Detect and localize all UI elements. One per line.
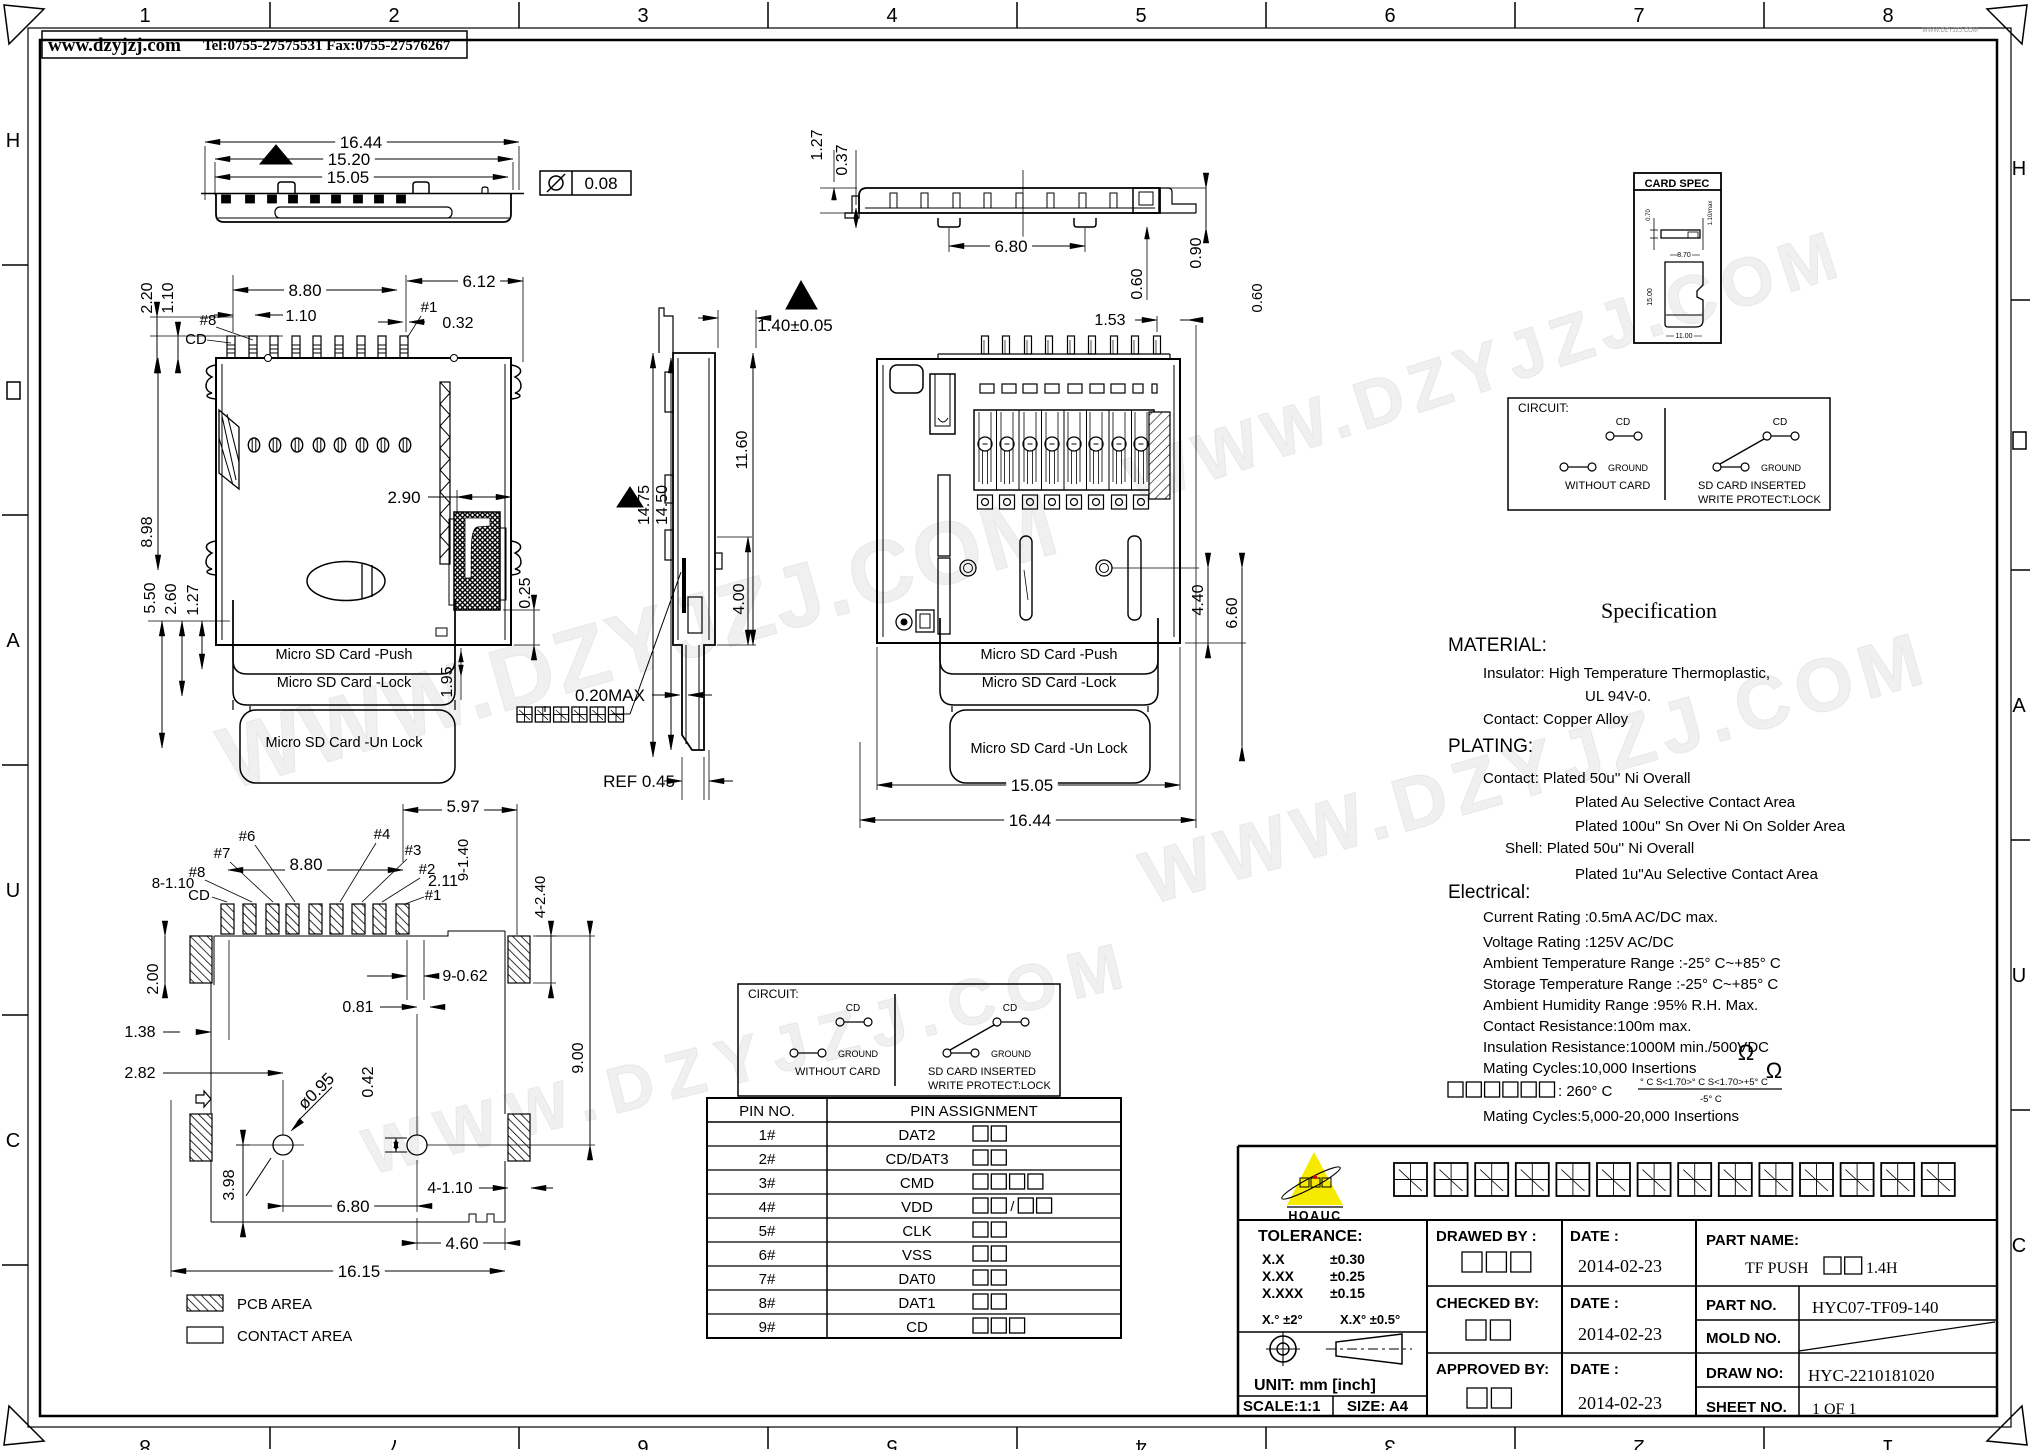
- svg-text:X.XXX: X.XXX: [1262, 1285, 1304, 1301]
- svg-text:3: 3: [1384, 1435, 1395, 1450]
- svg-text:U: U: [6, 880, 20, 902]
- svg-text:Plated 100u'' Sn Over Ni On So: Plated 100u'' Sn Over Ni On Solder Area: [1575, 818, 1846, 835]
- svg-text:PIN NO.: PIN NO.: [739, 1103, 795, 1120]
- svg-text:CMD: CMD: [900, 1175, 934, 1192]
- svg-text:Micro SD Card -Lock: Micro SD Card -Lock: [982, 675, 1117, 691]
- svg-text:Plated 1u"Au Selective Contact: Plated 1u"Au Selective Contact Area: [1575, 866, 1819, 883]
- svg-text:3#: 3#: [759, 1175, 776, 1192]
- svg-text:0.37: 0.37: [834, 144, 851, 175]
- svg-text:APPROVED BY:: APPROVED BY:: [1436, 1361, 1549, 1378]
- svg-text:CIRCUIT:: CIRCUIT:: [1518, 401, 1569, 415]
- svg-text:14.50: 14.50: [654, 485, 671, 525]
- svg-text:4: 4: [886, 5, 897, 27]
- svg-text:DAT1: DAT1: [898, 1295, 935, 1312]
- svg-text:15.00: 15.00: [1647, 288, 1654, 306]
- svg-text:0.42: 0.42: [360, 1066, 377, 1097]
- svg-text:1.27: 1.27: [185, 584, 202, 615]
- svg-text:A: A: [6, 630, 20, 652]
- svg-text:#3: #3: [405, 842, 422, 859]
- svg-text:DRAWED BY :: DRAWED BY :: [1436, 1228, 1537, 1245]
- svg-text:WRITE PROTECT:LOCK: WRITE PROTECT:LOCK: [928, 1080, 1052, 1092]
- svg-text:CIRCUIT:: CIRCUIT:: [748, 987, 799, 1001]
- svg-text:0.60: 0.60: [1249, 283, 1266, 312]
- svg-text:GROUND: GROUND: [1608, 463, 1648, 473]
- svg-text:9-1.40: 9-1.40: [455, 839, 472, 882]
- svg-text:±0.25: ±0.25: [1330, 1268, 1365, 1284]
- svg-text:1.10/max: 1.10/max: [1708, 201, 1714, 226]
- svg-text:5: 5: [886, 1435, 897, 1450]
- svg-text:16.15: 16.15: [338, 1262, 381, 1281]
- svg-text:www.dzyjzj.com: www.dzyjzj.com: [48, 35, 181, 56]
- svg-text:HYC-2210181020: HYC-2210181020: [1808, 1366, 1935, 1385]
- svg-text:Micro SD Card -Un Lock: Micro SD Card -Un Lock: [265, 735, 423, 751]
- svg-text:4#: 4#: [759, 1199, 776, 1216]
- svg-text:2.11: 2.11: [428, 873, 458, 890]
- svg-text:X.XX: X.XX: [1262, 1268, 1295, 1284]
- svg-text:Contact: Plated 50u'' Ni Overa: Contact: Plated 50u'' Ni Overall: [1483, 770, 1691, 787]
- svg-text:2: 2: [1633, 1435, 1644, 1450]
- svg-text:PART NAME:: PART NAME:: [1706, 1232, 1799, 1249]
- svg-text:2: 2: [388, 5, 399, 27]
- svg-text:2.60: 2.60: [163, 583, 180, 614]
- svg-text:8-1.10: 8-1.10: [152, 875, 195, 892]
- svg-text:Mating Cycles:10,000 Insertion: Mating Cycles:10,000 Insertions: [1483, 1060, 1696, 1077]
- svg-text:14.75: 14.75: [636, 485, 653, 525]
- svg-text:3: 3: [637, 5, 648, 27]
- svg-text:4-2.40: 4-2.40: [532, 876, 549, 919]
- svg-text:2014-02-23: 2014-02-23: [1578, 1324, 1662, 1344]
- svg-text:1.10: 1.10: [285, 308, 316, 325]
- svg-text:9.00: 9.00: [570, 1042, 587, 1073]
- svg-text:7: 7: [1633, 5, 1644, 27]
- svg-text:Plated Au Selective Contact Ar: Plated Au Selective Contact Area: [1575, 794, 1796, 811]
- svg-text:Electrical:: Electrical:: [1448, 882, 1530, 903]
- svg-text:X.° ±2°: X.° ±2°: [1262, 1312, 1303, 1327]
- svg-text:MOLD NO.: MOLD NO.: [1706, 1330, 1781, 1347]
- svg-text:#1: #1: [421, 299, 438, 316]
- svg-text:CD: CD: [1773, 417, 1787, 428]
- svg-text:° C S<1.70>° C S<1.70>+5° C: ° C S<1.70>° C S<1.70>+5° C: [1640, 1077, 1768, 1088]
- svg-text:2.20: 2.20: [139, 282, 156, 313]
- svg-text:4.00: 4.00: [731, 583, 748, 614]
- svg-text:6.80: 6.80: [994, 237, 1027, 256]
- svg-text:/: /: [1010, 1198, 1014, 1214]
- svg-text:DAT0: DAT0: [898, 1271, 935, 1288]
- svg-text:2.90: 2.90: [387, 488, 420, 507]
- svg-text:2#: 2#: [759, 1151, 776, 1168]
- svg-text:Micro SD Card -Lock: Micro SD Card -Lock: [277, 675, 412, 691]
- svg-text:-5° C: -5° C: [1700, 1094, 1722, 1105]
- svg-text:4-1.10: 4-1.10: [427, 1180, 472, 1197]
- svg-text:HOAUC: HOAUC: [1288, 1209, 1341, 1223]
- svg-text:0.25: 0.25: [517, 577, 534, 608]
- svg-text:1: 1: [1882, 1435, 1893, 1450]
- svg-text:5.50: 5.50: [142, 582, 159, 613]
- svg-text:Insulator: High Temperature Th: Insulator: High Temperature Thermoplasti…: [1483, 665, 1770, 682]
- svg-text:WWW.DZYJZJ.COM: WWW.DZYJZJ.COM: [1922, 28, 1978, 34]
- svg-text:PCB AREA: PCB AREA: [237, 1296, 312, 1313]
- svg-text:SCALE:1:1: SCALE:1:1: [1243, 1398, 1321, 1415]
- svg-text:1.38: 1.38: [124, 1024, 155, 1041]
- svg-text:8.80: 8.80: [288, 281, 321, 300]
- svg-text:PART NO.: PART NO.: [1706, 1297, 1777, 1314]
- svg-text:2.00: 2.00: [145, 963, 162, 994]
- svg-text:X.X: X.X: [1262, 1251, 1285, 1267]
- svg-text:Storage Temperature Range :-25: Storage Temperature Range :-25° C~+85° C: [1483, 976, 1778, 993]
- svg-text:WITHOUT CARD: WITHOUT CARD: [1565, 480, 1650, 492]
- svg-text:0.60: 0.60: [1129, 268, 1146, 299]
- svg-text:1: 1: [139, 5, 150, 27]
- svg-text:15.20: 15.20: [328, 150, 371, 169]
- svg-text:2014-02-23: 2014-02-23: [1578, 1393, 1662, 1413]
- svg-text:0.70: 0.70: [1646, 209, 1652, 221]
- svg-text:8#: 8#: [759, 1295, 776, 1312]
- svg-text:Mating Cycles:5,000-20,000 Ins: Mating Cycles:5,000-20,000 Insertions: [1483, 1108, 1739, 1125]
- svg-text:UL 94V-0.: UL 94V-0.: [1585, 688, 1651, 705]
- svg-text:CLK: CLK: [902, 1223, 931, 1240]
- svg-text:CD: CD: [906, 1319, 928, 1336]
- svg-text:8: 8: [139, 1435, 150, 1450]
- svg-text:1.40±0.05: 1.40±0.05: [757, 316, 833, 335]
- svg-text:DATE :: DATE :: [1570, 1295, 1619, 1312]
- svg-text:Tel:0755-27575531 Fax:0755-27: Tel:0755-27575531 Fax:0755-27576267: [203, 38, 451, 54]
- svg-text:H: H: [2012, 158, 2026, 180]
- svg-text:1.27: 1.27: [809, 129, 826, 160]
- svg-text:6.80: 6.80: [336, 1197, 369, 1216]
- svg-text:A: A: [2012, 695, 2026, 717]
- svg-text:WITHOUT CARD: WITHOUT CARD: [795, 1066, 880, 1078]
- svg-text:Ambient Temperature Range :-25: Ambient Temperature Range :-25° C~+85° C: [1483, 955, 1781, 972]
- svg-text:7: 7: [388, 1435, 399, 1450]
- svg-text:8.80: 8.80: [289, 855, 322, 874]
- svg-text:4.60: 4.60: [445, 1234, 478, 1253]
- svg-text:Shell: Plated 50u'' Ni Overall: Shell: Plated 50u'' Ni Overall: [1505, 840, 1694, 857]
- svg-text:#6: #6: [239, 828, 256, 845]
- svg-text:Micro SD Card -Push: Micro SD Card -Push: [981, 647, 1118, 663]
- svg-text:#4: #4: [374, 826, 391, 843]
- svg-text:9#: 9#: [759, 1319, 776, 1336]
- svg-text:DAT2: DAT2: [898, 1127, 935, 1144]
- svg-text:1.53: 1.53: [1094, 312, 1125, 329]
- svg-text:6.12: 6.12: [462, 272, 495, 291]
- svg-text:±0.15: ±0.15: [1330, 1285, 1365, 1301]
- svg-text:Voltage Rating :125V AC/DC: Voltage Rating :125V AC/DC: [1483, 934, 1674, 951]
- svg-text:4: 4: [1135, 1435, 1146, 1450]
- svg-text:U: U: [2012, 965, 2026, 987]
- svg-text:Ambient Humidity Range :95% R.: Ambient Humidity Range :95% R.H. Max.: [1483, 997, 1758, 1014]
- svg-text:CD: CD: [1616, 417, 1630, 428]
- svg-text:C: C: [2012, 1235, 2026, 1257]
- svg-text:15.05: 15.05: [1011, 776, 1054, 795]
- svg-text:Ω: Ω: [1738, 1040, 1754, 1065]
- svg-text:Specification: Specification: [1601, 598, 1717, 623]
- svg-text:3.98: 3.98: [221, 1169, 238, 1200]
- svg-text:DRAW NO:: DRAW NO:: [1706, 1365, 1784, 1382]
- svg-text:Micro SD Card -Push: Micro SD Card -Push: [276, 647, 413, 663]
- svg-text:CD: CD: [185, 331, 207, 348]
- svg-text:PIN ASSIGNMENT: PIN ASSIGNMENT: [910, 1103, 1038, 1120]
- svg-text:0.32: 0.32: [442, 315, 473, 332]
- svg-text:0.08: 0.08: [584, 174, 617, 193]
- svg-text:DATE :: DATE :: [1570, 1228, 1619, 1245]
- svg-text:Insulation Resistance:1000M m: Insulation Resistance:1000M min./500VDC: [1483, 1039, 1769, 1056]
- svg-text:2.82: 2.82: [124, 1065, 155, 1082]
- svg-text:SD CARD INSERTED: SD CARD INSERTED: [928, 1066, 1036, 1078]
- svg-text:8: 8: [1882, 5, 1893, 27]
- svg-text:UNIT: mm [inch]: UNIT: mm [inch]: [1254, 1377, 1376, 1394]
- svg-text:6: 6: [1384, 5, 1395, 27]
- svg-text:Current Rating :0.5mA AC/DC ma: Current Rating :0.5mA AC/DC max.: [1483, 909, 1718, 926]
- svg-text:4.40: 4.40: [1190, 584, 1207, 615]
- svg-text:6.60: 6.60: [1224, 597, 1241, 628]
- svg-text:6: 6: [637, 1435, 648, 1450]
- svg-text:GROUND: GROUND: [838, 1049, 878, 1059]
- svg-text:5: 5: [1135, 5, 1146, 27]
- svg-text:0.90: 0.90: [1188, 237, 1205, 268]
- svg-text:GROUND: GROUND: [1761, 463, 1801, 473]
- svg-text:8.70: 8.70: [1677, 252, 1691, 259]
- svg-text:2014-02-23: 2014-02-23: [1578, 1256, 1662, 1276]
- svg-text:1 OF 1: 1 OF 1: [1812, 1401, 1856, 1418]
- svg-text:15.05: 15.05: [327, 168, 370, 187]
- svg-text:CD/DAT3: CD/DAT3: [885, 1151, 948, 1168]
- svg-text:C: C: [6, 1130, 20, 1152]
- svg-text:GROUND: GROUND: [991, 1049, 1031, 1059]
- svg-text:Ω: Ω: [1766, 1058, 1782, 1083]
- svg-text:6#: 6#: [759, 1247, 776, 1264]
- svg-text:CARD SPEC: CARD SPEC: [1645, 178, 1710, 190]
- svg-text:16.44: 16.44: [1009, 811, 1052, 830]
- svg-text:#8: #8: [200, 312, 217, 329]
- svg-text:1.4H: 1.4H: [1866, 1260, 1898, 1277]
- svg-text:H: H: [6, 130, 20, 152]
- svg-text:Contact Resistance:100m max.: Contact Resistance:100m max.: [1483, 1018, 1691, 1035]
- svg-text:PLATING:: PLATING:: [1448, 736, 1533, 757]
- svg-text:5.97: 5.97: [446, 797, 479, 816]
- svg-text:11.00: 11.00: [1676, 333, 1693, 340]
- svg-text:11.60: 11.60: [734, 430, 751, 469]
- svg-text:WRITE PROTECT:LOCK: WRITE PROTECT:LOCK: [1698, 494, 1822, 506]
- svg-text:±0.30: ±0.30: [1330, 1251, 1365, 1267]
- svg-text:CHECKED BY:: CHECKED BY:: [1436, 1295, 1539, 1312]
- svg-text:Micro SD Card -Un Lock: Micro SD Card -Un Lock: [970, 741, 1128, 757]
- svg-text:SIZE: A4: SIZE: A4: [1347, 1398, 1409, 1415]
- svg-text:MATERIAL:: MATERIAL:: [1448, 635, 1547, 656]
- svg-text:HYC07-TF09-140: HYC07-TF09-140: [1812, 1298, 1939, 1317]
- svg-text:TOLERANCE:: TOLERANCE:: [1258, 1228, 1363, 1245]
- svg-text:#7: #7: [214, 845, 231, 862]
- svg-text:CONTACT AREA: CONTACT AREA: [237, 1328, 352, 1345]
- svg-text:X.X° ±0.5°: X.X° ±0.5°: [1340, 1312, 1400, 1327]
- svg-text:5#: 5#: [759, 1223, 776, 1240]
- svg-text:9-0.62: 9-0.62: [442, 968, 487, 985]
- svg-text:CD: CD: [1003, 1003, 1017, 1014]
- svg-text:VDD: VDD: [901, 1199, 933, 1216]
- svg-text:SHEET NO.: SHEET NO.: [1706, 1399, 1787, 1416]
- svg-text:DATE :: DATE :: [1570, 1361, 1619, 1378]
- svg-text:VSS: VSS: [902, 1247, 932, 1264]
- svg-text:8.98: 8.98: [139, 516, 156, 547]
- svg-text:1.95: 1.95: [439, 666, 456, 697]
- svg-text:Contact: Copper Alloy: Contact: Copper Alloy: [1483, 711, 1629, 728]
- svg-text:TF PUSH: TF PUSH: [1745, 1260, 1809, 1277]
- svg-text:: 260° C: : 260° C: [1558, 1083, 1613, 1100]
- svg-text:1#: 1#: [759, 1127, 776, 1144]
- svg-text:1.10: 1.10: [160, 282, 177, 313]
- svg-text:0.81: 0.81: [342, 999, 373, 1016]
- svg-text:CD: CD: [846, 1003, 860, 1014]
- svg-text:7#: 7#: [759, 1271, 776, 1288]
- svg-text:SD CARD INSERTED: SD CARD INSERTED: [1698, 480, 1806, 492]
